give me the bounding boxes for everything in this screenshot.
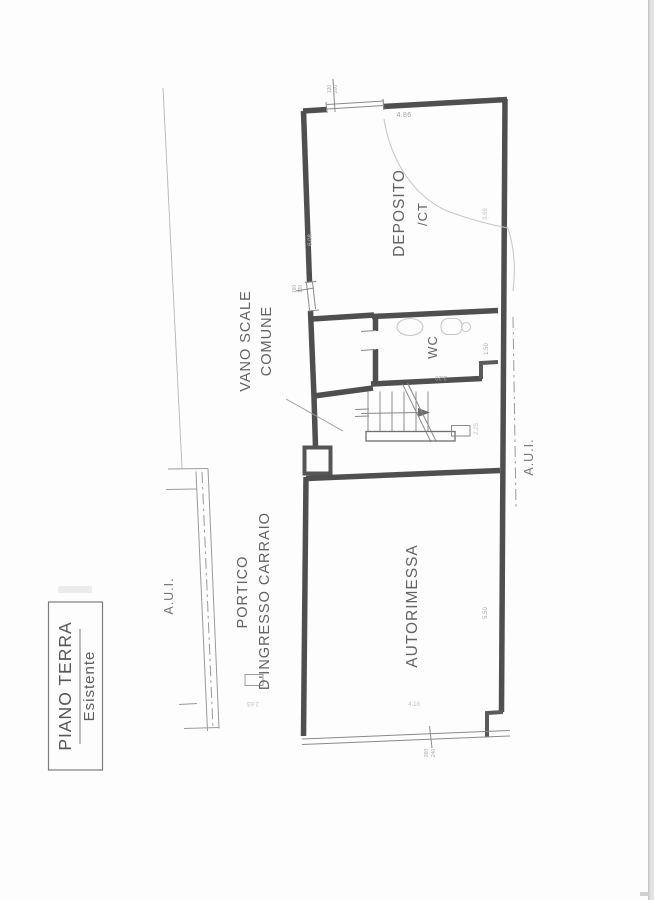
road-tick-top1 [168,469,208,470]
wall-wc-top [372,311,498,317]
boundary-line [163,88,182,468]
interior-walls [306,311,500,479]
title-block: PIANO TERRA Esistente [49,602,103,770]
vano-scale-label-line2: COMUNE [259,306,275,376]
corner-mark [640,892,649,896]
wall-right [502,99,506,712]
door-jamb-t [305,282,316,283]
dim-stair-width: 2.25 [474,423,480,435]
staircase [355,383,470,442]
window-dim-tick [333,79,335,112]
plan-subtitle: Esistente [81,651,98,722]
road-tick-bottom1 [179,704,197,705]
window-sill-1 [327,101,384,105]
scan-artifacts [58,0,654,900]
wc-fixtures [397,319,471,336]
door-line-2 [313,282,316,309]
road-centerline [202,472,213,729]
dim-garage-door-width: 260 [424,749,430,758]
vano-scale-label-line1: VANO SCALE [238,290,254,392]
dim-garage-width: 4.18 [408,702,420,708]
right-centerline [513,317,516,507]
dim-garage-door-height: 240 [431,749,437,758]
wall-top-main [383,100,507,107]
road-tick-bottom2 [184,728,219,729]
dim-top-width: 4.86 [397,112,412,119]
dim-wc-height: 1.50 [484,343,490,355]
stair-landing-wall [366,432,455,442]
autorimessa-label: AUTORIMESSA [404,544,421,668]
wall-left-mid [311,311,315,397]
dim-wc-width: 2.20 [435,374,447,380]
wall-right-jog [487,712,503,737]
wall-stairhall-top [314,388,373,396]
wc-label: WC [425,335,440,359]
road-boundary: A.U.I. [162,88,263,731]
aui-right-label: A.U.I. [522,438,536,475]
wc-door-jamb-t [361,331,376,332]
stair-arrow-tick2 [355,416,369,417]
stair-newel-post [452,426,471,437]
portico-label-line1: PORTICO [235,556,251,629]
dim-road-width: 2.63 [247,700,259,706]
dim-deposito-right: 3.69 [483,208,489,220]
door-line-1 [307,283,310,310]
wall-wc-jog [481,362,498,379]
wall-left-stair [314,397,316,447]
room-labels: VANO SCALE COMUNE PORTICO D'INGRESSO CAR… [235,169,440,690]
deposito-label-line1: DEPOSITO [391,169,408,257]
wall-deposito-bottom [312,315,374,319]
door-jamb-b [308,310,319,311]
wall-left-garage [304,477,307,736]
dim-garage-height: 5.50 [483,607,489,619]
road-tick-top2 [166,489,197,490]
stair-break-line2 [408,383,437,441]
toilet-icon [441,319,462,335]
dim-door-height: 120 [298,285,304,294]
page-edge-line [648,0,650,900]
garage-dim-tick [430,726,433,748]
smudge-mark [58,586,92,593]
wall-left-upper [304,111,310,282]
floor-plan-drawing: PIANO TERRA Esistente A.U.I. A.U.I. [0,0,654,900]
dim-deposito-left: 6.08 [308,234,314,246]
wall-wc-bottom [371,379,482,385]
road-edge-right [208,469,219,729]
aui-left-label: A.U.I. [162,577,176,614]
portico-pillar [305,448,331,474]
scanned-floor-plan-page: PIANO TERRA Esistente A.U.I. A.U.I. [0,0,654,900]
road-edge-left [196,472,208,732]
plan-title: PIANO TERRA [55,621,75,750]
stair-arrow-line [361,413,418,414]
right-boundary: A.U.I. [513,317,536,507]
drain-icon [462,323,471,332]
dim-window-height: 200 [333,85,339,94]
wall-top-stub [303,110,327,112]
portico-label-line2: D'INGRESSO CARRAIO [257,512,273,690]
sink-icon [397,319,423,336]
window-sill-2 [327,106,384,110]
wall-garage-top [306,471,500,479]
stair-arrow-tick1 [355,409,369,410]
deposito-label-line2: /CT [415,202,430,226]
